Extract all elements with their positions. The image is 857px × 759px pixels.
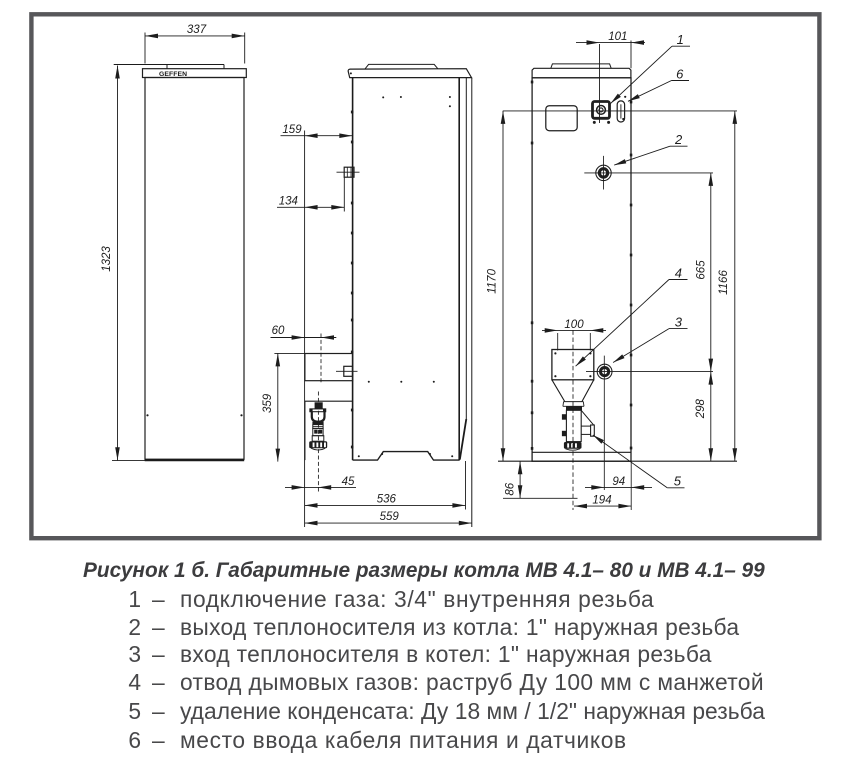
- svg-text:134: 134: [279, 195, 298, 207]
- svg-text:3: 3: [675, 314, 683, 329]
- svg-text:559: 559: [380, 511, 400, 523]
- svg-text:1166: 1166: [718, 270, 730, 295]
- svg-text:94: 94: [612, 476, 625, 488]
- svg-text:100: 100: [564, 319, 584, 331]
- svg-text:1170: 1170: [486, 268, 498, 293]
- svg-text:337: 337: [187, 24, 207, 36]
- svg-text:1: 1: [677, 32, 684, 47]
- svg-text:536: 536: [377, 493, 397, 505]
- svg-text:359: 359: [262, 393, 274, 413]
- svg-text:60: 60: [272, 325, 285, 337]
- svg-text:298: 298: [695, 399, 707, 420]
- svg-text:86: 86: [504, 482, 516, 495]
- svg-text:5: 5: [674, 474, 682, 489]
- svg-text:GEFFEN: GEFFEN: [159, 71, 187, 78]
- svg-text:101: 101: [608, 31, 627, 43]
- svg-text:194: 194: [592, 495, 611, 507]
- svg-text:6: 6: [676, 66, 684, 81]
- svg-text:2: 2: [674, 132, 683, 147]
- svg-text:4: 4: [675, 265, 682, 280]
- svg-text:665: 665: [696, 260, 708, 280]
- svg-text:1323: 1323: [101, 246, 113, 272]
- svg-text:159: 159: [282, 124, 302, 136]
- svg-text:45: 45: [342, 476, 355, 488]
